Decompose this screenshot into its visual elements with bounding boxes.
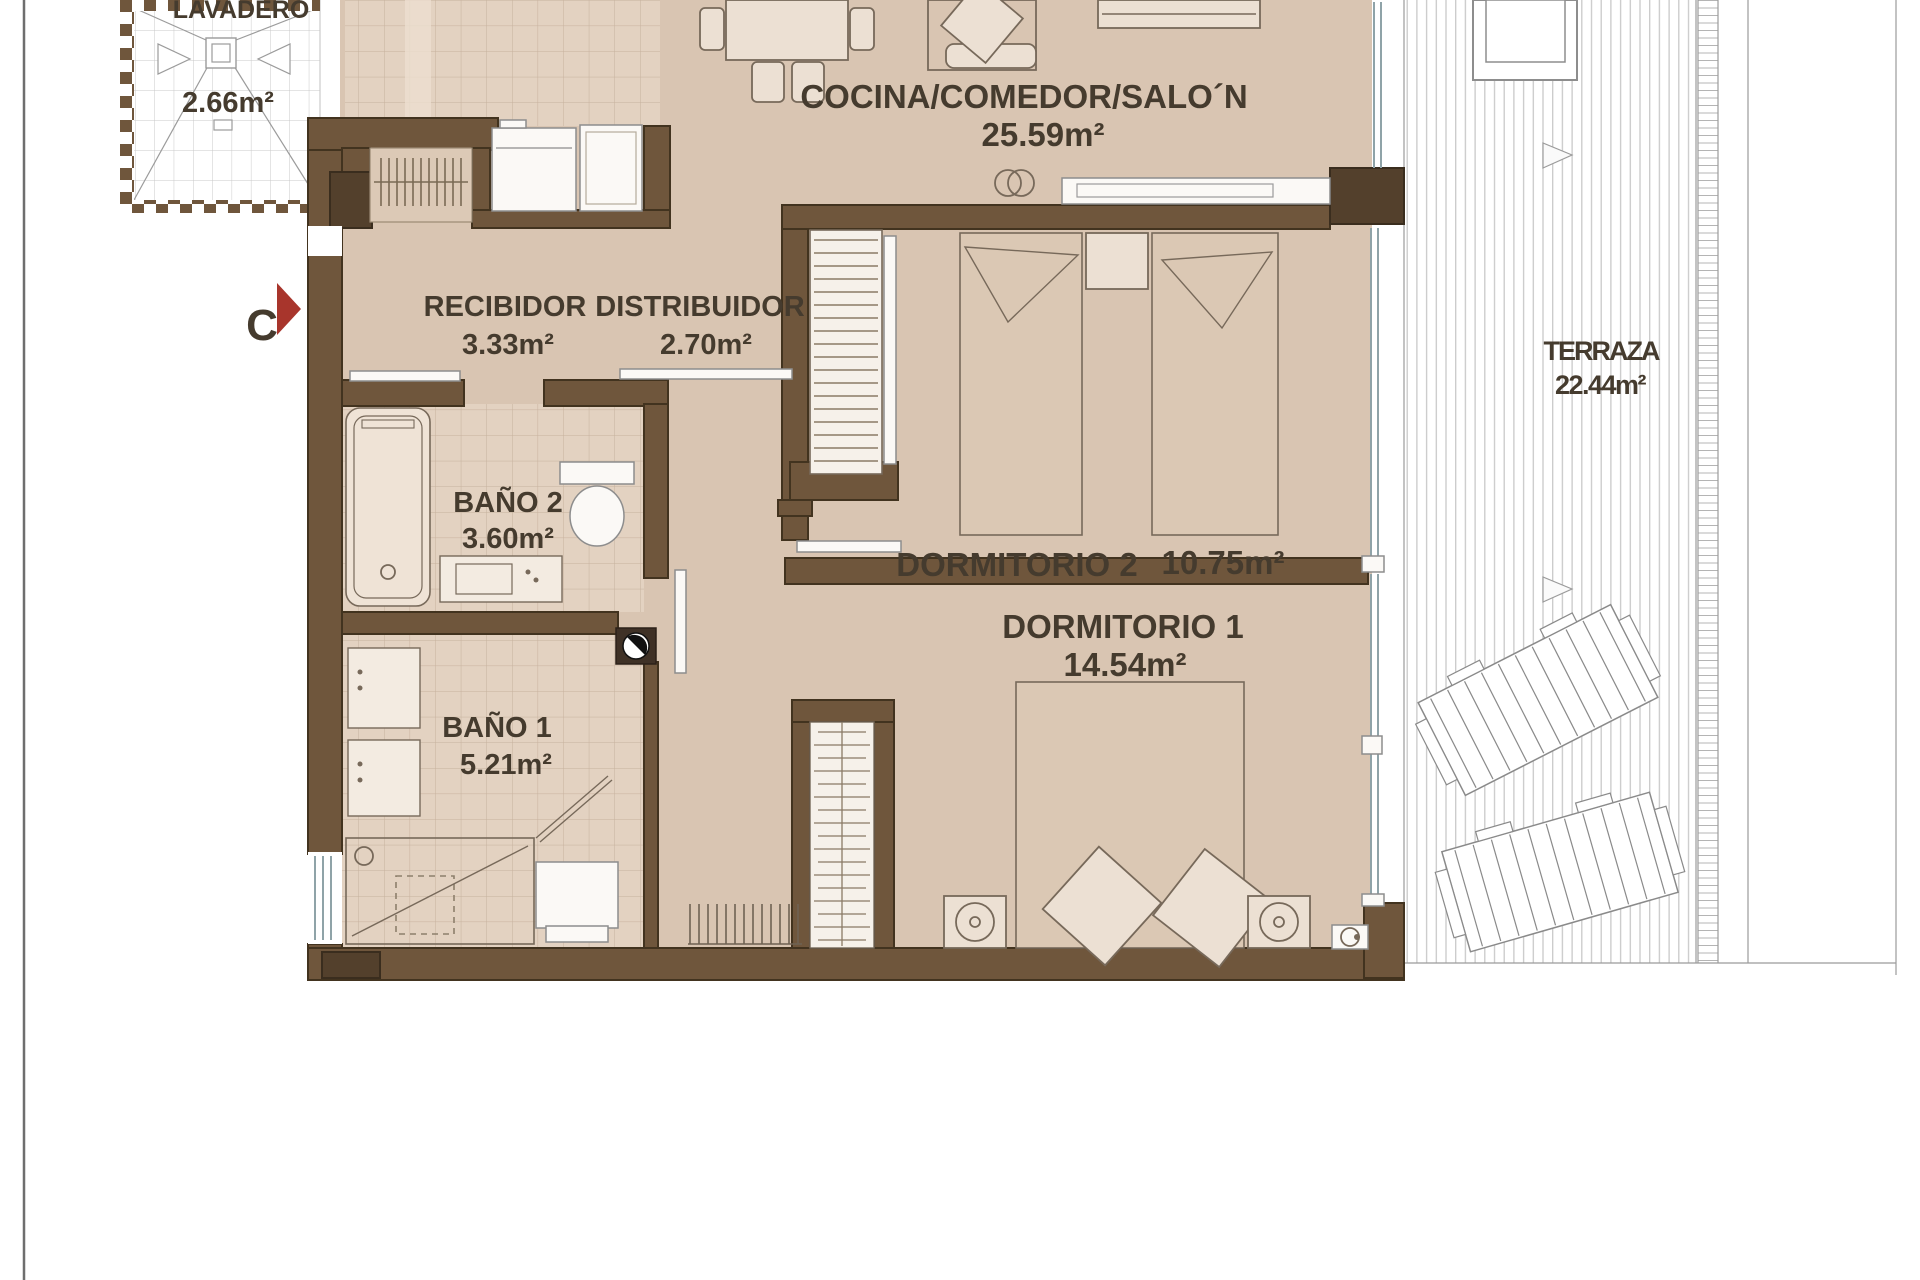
room-label-bano1: BAÑO 1 (442, 710, 552, 744)
window-mullion (1362, 556, 1384, 572)
room-label-dormitorio2: DORMITORIO 2 (896, 546, 1137, 583)
room-area-cocina: 25.59m² (982, 116, 1105, 153)
room-area-distribuidor: 2.70m² (660, 329, 752, 361)
section-marker-label: C (246, 301, 278, 350)
bed-icon (1152, 233, 1278, 535)
vanity-sink-icon (440, 556, 562, 602)
window-left (308, 852, 342, 944)
coat-closet-icon (370, 148, 472, 222)
room-area-bano2: 3.60m² (462, 523, 554, 555)
wall-pillar (1364, 903, 1404, 978)
outlet-box-icon (1332, 925, 1368, 949)
sofa-icon (1098, 0, 1260, 28)
room-label-distribuidor: DISTRIBUIDOR (595, 291, 805, 323)
entry-door-opening (308, 226, 342, 256)
room-label-lavadero: LAVADERO (173, 0, 310, 24)
bathtub-icon (346, 408, 430, 606)
floor-plan-page: LAVADERO 2.66m² COCINA/COMEDOR/SALO´N 25… (0, 0, 1920, 1280)
room-area-recibidor: 3.33m² (462, 329, 554, 361)
nightstand-icon (1086, 233, 1148, 289)
section-marker-arrow-icon (277, 283, 301, 335)
tv-sideboard-icon (1062, 178, 1330, 204)
lavadero-hatch-border (120, 0, 134, 212)
speaker-icon (944, 896, 1006, 948)
terrace (1403, 0, 1896, 975)
kitchen-tiles (345, 0, 660, 126)
room-area-dormitorio1: 14.54m² (1064, 646, 1187, 683)
room-label-dormitorio1: DORMITORIO 1 (1002, 608, 1243, 645)
door-leaf (675, 570, 686, 673)
vent-icon (206, 38, 236, 68)
double-bed-icon (1016, 682, 1271, 967)
entry-door-leaf (330, 172, 372, 228)
room-area-lavadero: 2.66m² (182, 87, 274, 119)
room-label-bano2: BAÑO 2 (453, 485, 563, 519)
room-area-dormitorio2: 10.75m² (1162, 544, 1285, 581)
floor-plan-drawing: LAVADERO 2.66m² COCINA/COMEDOR/SALO´N 25… (0, 0, 1920, 1280)
vanity-sink-icon (348, 648, 420, 728)
wardrobe-dorm1-icon (810, 722, 874, 948)
wall-pillar (1330, 168, 1404, 224)
drain-symbol-icon (616, 628, 656, 664)
room-label-cocina: COCINA/COMEDOR/SALO´N (800, 78, 1247, 115)
toilet-icon (536, 862, 618, 942)
window-mullion (1362, 894, 1384, 906)
window-mullion (1362, 736, 1382, 754)
lavadero-hatch-border (120, 200, 320, 213)
door-leaf (620, 369, 792, 379)
fridge-icon (492, 120, 576, 211)
bed-icon (960, 233, 1082, 535)
vanity-sink-icon (348, 740, 420, 816)
room-area-bano1: 5.21m² (460, 749, 552, 781)
door-leaf (350, 371, 460, 381)
terrace-planter (1473, 0, 1577, 80)
door-leaf (797, 541, 901, 552)
room-label-recibidor: RECIBIDOR (424, 291, 587, 323)
room-label-terraza: TERRAZA (1544, 336, 1660, 366)
room-area-terraza: 22.44m² (1555, 370, 1647, 400)
section-marker-c: C (246, 283, 301, 350)
oven-column-icon (580, 125, 642, 211)
speaker-icon (1248, 896, 1310, 948)
terrace-drain-channel (1698, 0, 1718, 963)
